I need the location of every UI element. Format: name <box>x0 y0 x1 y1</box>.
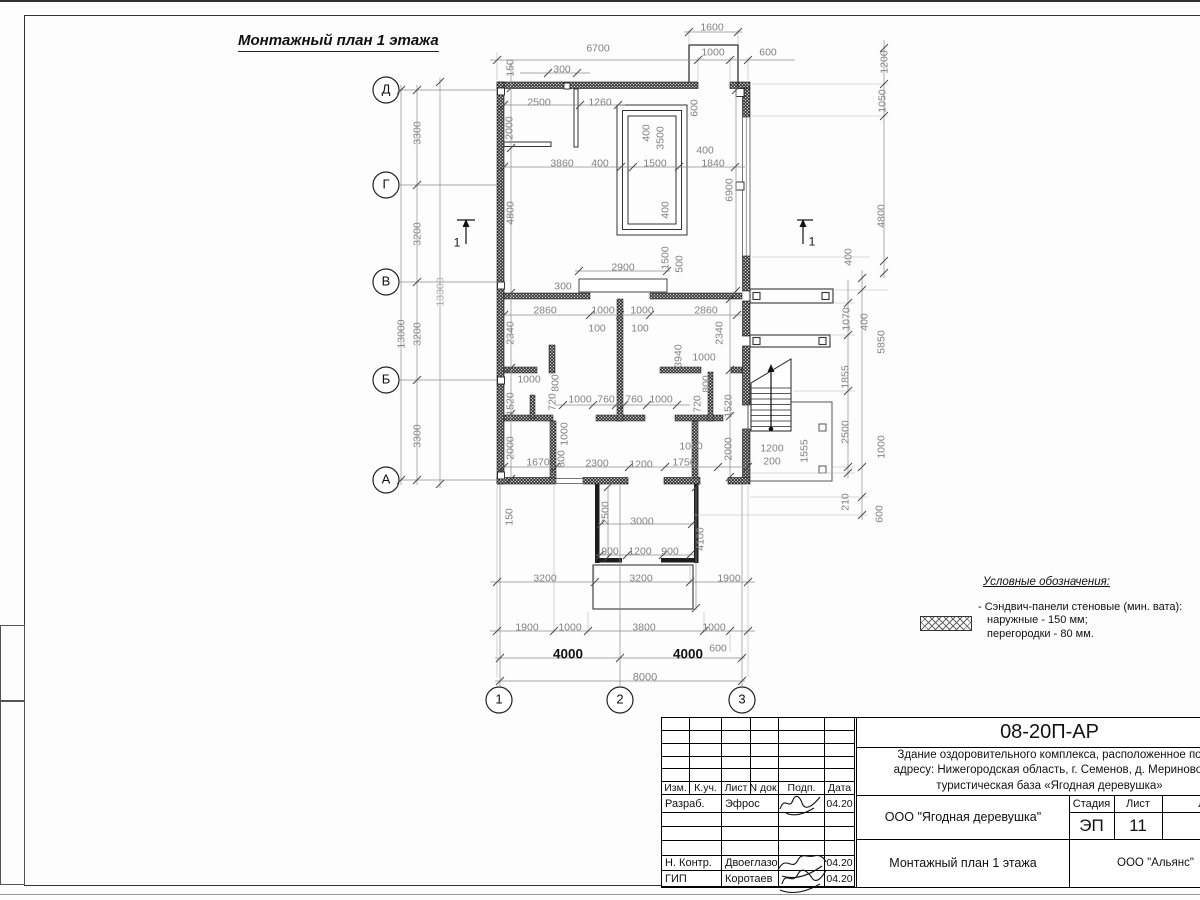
dim-label: 2860 <box>694 305 718 317</box>
dim-label: 900 <box>601 546 619 558</box>
dim-label: 300 <box>554 281 572 293</box>
dim-label: 720 <box>547 393 559 411</box>
dim-label: 1855 <box>840 365 852 389</box>
dim-label: Д <box>382 82 391 97</box>
dim-label: 1000 <box>558 622 582 634</box>
dim-label: 3300 <box>412 424 424 448</box>
dim-label: 3940 <box>673 344 685 368</box>
dim-label: 1000 <box>630 305 654 317</box>
signature-cell <box>779 856 825 871</box>
dim-label: 2000 <box>723 437 735 461</box>
dim-label: 400 <box>696 145 714 157</box>
dim-label: 2500 <box>527 97 551 109</box>
dim-label: 400 <box>591 158 609 170</box>
dim-label: 1070 <box>841 307 853 331</box>
dim-label: 1520 <box>723 394 735 418</box>
side-ramps <box>750 289 833 347</box>
dim-label: 1 <box>495 692 502 707</box>
dim-label: 1000 <box>692 352 716 364</box>
legend-heading: Условные обозначения: <box>983 576 1200 588</box>
dim-label: 6900 <box>724 178 736 202</box>
dim-label: 13000 <box>396 319 408 348</box>
dim-label: 3 <box>738 692 745 707</box>
dim-label: 1000 <box>702 622 726 634</box>
dim-label: 3200 <box>412 322 424 346</box>
col-podp: Подп. <box>779 782 825 795</box>
document-code: 08-20П-АР <box>857 718 1200 748</box>
dim-label: 1260 <box>588 97 612 109</box>
dim-label: 1840 <box>701 158 725 170</box>
dim-label: 2000 <box>505 436 517 460</box>
dim-label: 400 <box>843 248 855 266</box>
dim-label: 4000 <box>673 647 703 662</box>
staircase <box>751 359 791 431</box>
dim-label: 1200 <box>879 50 891 74</box>
project-description: Здание оздоровительного комплекса, распо… <box>857 747 1200 796</box>
row-date: 04.20 <box>825 795 855 813</box>
dim-label: 1555 <box>799 439 811 463</box>
dim-label: 3200 <box>629 573 653 585</box>
dim-label: 2860 <box>533 305 557 317</box>
dim-label: 210 <box>840 493 852 511</box>
dim-label: 400 <box>641 124 653 142</box>
revision-table: Изм. К.уч. Лист N док. Подп. Дата Разраб… <box>662 718 856 887</box>
dim-label: 1200 <box>628 546 652 558</box>
stage-label: Стадия <box>1069 795 1115 813</box>
dim-label: 5850 <box>876 330 888 354</box>
window-openings <box>556 117 750 484</box>
dim-label: 2500 <box>600 501 612 525</box>
dim-label: 2340 <box>714 321 726 345</box>
dim-label: 1600 <box>700 22 724 34</box>
dim-label: 1000 <box>649 394 673 406</box>
signature-cell <box>779 871 825 887</box>
dim-label: 760 <box>625 394 643 406</box>
dim-label: 800 <box>556 450 568 468</box>
dim-label: 2300 <box>585 458 609 470</box>
dim-label: 1 <box>454 236 461 250</box>
row-date: 04.20 <box>825 871 855 887</box>
description-text: Здание оздоровительного комплекса, распо… <box>894 748 1200 795</box>
dim-label: Б <box>382 372 391 387</box>
dim-label: 400 <box>660 201 672 219</box>
dim-label: 1900 <box>717 573 741 585</box>
dim-label: 4800 <box>505 201 517 225</box>
dim-label: В <box>382 274 391 289</box>
col-kuch: К.уч. <box>690 782 722 795</box>
row-role: ГИП <box>662 871 722 887</box>
dim-label: 4100 <box>695 527 707 551</box>
dim-label: Г <box>382 177 389 192</box>
dim-label: 1000 <box>876 435 888 459</box>
drawing-sheet: { "title": "Монтажный план 1 этажа", "le… <box>0 0 1200 900</box>
row-role: Разраб. <box>662 795 722 813</box>
dim-label: 2900 <box>611 262 635 274</box>
dim-label: 900 <box>661 546 679 558</box>
dim-label: 1750 <box>672 457 696 469</box>
col-ndok: N док. <box>751 782 779 795</box>
dim-label: 3300 <box>412 121 424 145</box>
dim-label: 600 <box>874 505 886 523</box>
sheets-value <box>1162 812 1200 840</box>
dim-label: 150 <box>505 59 517 77</box>
dim-label: 1000 <box>568 394 592 406</box>
dim-label: 2 <box>616 692 623 707</box>
col-izm: Изм. <box>662 782 690 795</box>
dim-label: 1670 <box>526 457 550 469</box>
dim-label: 400 <box>859 313 871 331</box>
dim-label: 800 <box>701 375 713 393</box>
dim-label: 2500 <box>840 420 852 444</box>
stage-value: ЭП <box>1069 812 1115 840</box>
row-name: Двоеглазов <box>722 856 779 871</box>
stamp-main: 08-20П-АР Здание оздоровительного компле… <box>856 718 1200 887</box>
dim-label: 100 <box>588 323 606 335</box>
dim-label: 1500 <box>660 246 672 270</box>
dim-label: 1000 <box>679 441 703 453</box>
dim-label: 600 <box>709 643 727 655</box>
row-date: 04.20 <box>825 856 855 871</box>
dim-label: 600 <box>689 99 701 117</box>
lintel-beam <box>579 279 667 292</box>
dim-label: 13300 <box>435 277 447 306</box>
dim-label: 2000 <box>504 116 516 140</box>
dim-label: 1520 <box>505 392 517 416</box>
client-org: ООО "Ягодная деревушка" <box>857 795 1070 840</box>
legend: Условные обозначения: - Сэндвич-панели с… <box>920 576 1200 641</box>
design-firm: ООО "Альянс" <box>1069 839 1200 887</box>
legend-line: наружные - 150 мм; <box>987 614 1094 628</box>
dim-label: 100 <box>631 323 649 335</box>
dim-label: 760 <box>597 394 615 406</box>
legend-line: перегородки - 80 мм. <box>987 628 1094 642</box>
dim-label: 3860 <box>550 158 574 170</box>
sheets-label: Листов <box>1162 795 1200 813</box>
dim-label: 720 <box>692 395 704 413</box>
sheet-number: 11 <box>1114 812 1163 840</box>
dim-label: 4800 <box>876 204 888 228</box>
dimension-labels: 1600670010006003001502500126020006004003… <box>382 22 891 707</box>
dim-label: 3800 <box>632 622 656 634</box>
dim-label: А <box>382 472 391 487</box>
col-list: Лист <box>722 782 751 795</box>
dim-label: 1900 <box>515 622 539 634</box>
dim-label: 3200 <box>412 222 424 246</box>
dim-label: 1200 <box>629 459 653 471</box>
title-block: Изм. К.уч. Лист N док. Подп. Дата Разраб… <box>661 717 1200 888</box>
dim-label: 1500 <box>643 158 667 170</box>
dim-label: 200 <box>763 456 781 468</box>
dim-label: 8000 <box>633 672 657 684</box>
axis-markers <box>373 77 755 713</box>
dim-label: 3200 <box>533 573 557 585</box>
dim-label: 1050 <box>877 89 889 113</box>
dim-label: 1000 <box>591 305 615 317</box>
dim-label: 1000 <box>517 374 541 386</box>
legend-line: - Сэндвич-панели стеновые (мин. вата): <box>978 601 1200 613</box>
dim-label: 3000 <box>630 516 654 528</box>
sandwich-panel-hatch-swatch <box>920 616 972 631</box>
row-role: Н. Контр. <box>662 856 722 871</box>
dim-label: 800 <box>550 374 562 392</box>
row-name: Эфрос <box>722 795 779 813</box>
dim-label: 1200 <box>760 443 784 455</box>
dim-label: 3500 <box>655 126 667 150</box>
row-name: Коротаев <box>722 871 779 887</box>
dim-label: 6700 <box>586 43 610 55</box>
dim-label: 500 <box>674 255 686 273</box>
dim-label: 1 <box>809 235 816 249</box>
dim-label: 1000 <box>701 47 725 59</box>
sheet-label: Лист <box>1114 795 1163 813</box>
dim-label: 1000 <box>559 422 571 446</box>
col-data: Дата <box>825 782 855 795</box>
dim-label: 600 <box>759 47 777 59</box>
signature-cell <box>779 795 825 813</box>
dim-label: 300 <box>553 64 571 76</box>
dim-label: 4000 <box>553 647 583 662</box>
dim-label: 2340 <box>505 321 517 345</box>
dim-label: 150 <box>504 508 516 526</box>
drawing-name: Монтажный план 1 этажа <box>857 839 1070 887</box>
